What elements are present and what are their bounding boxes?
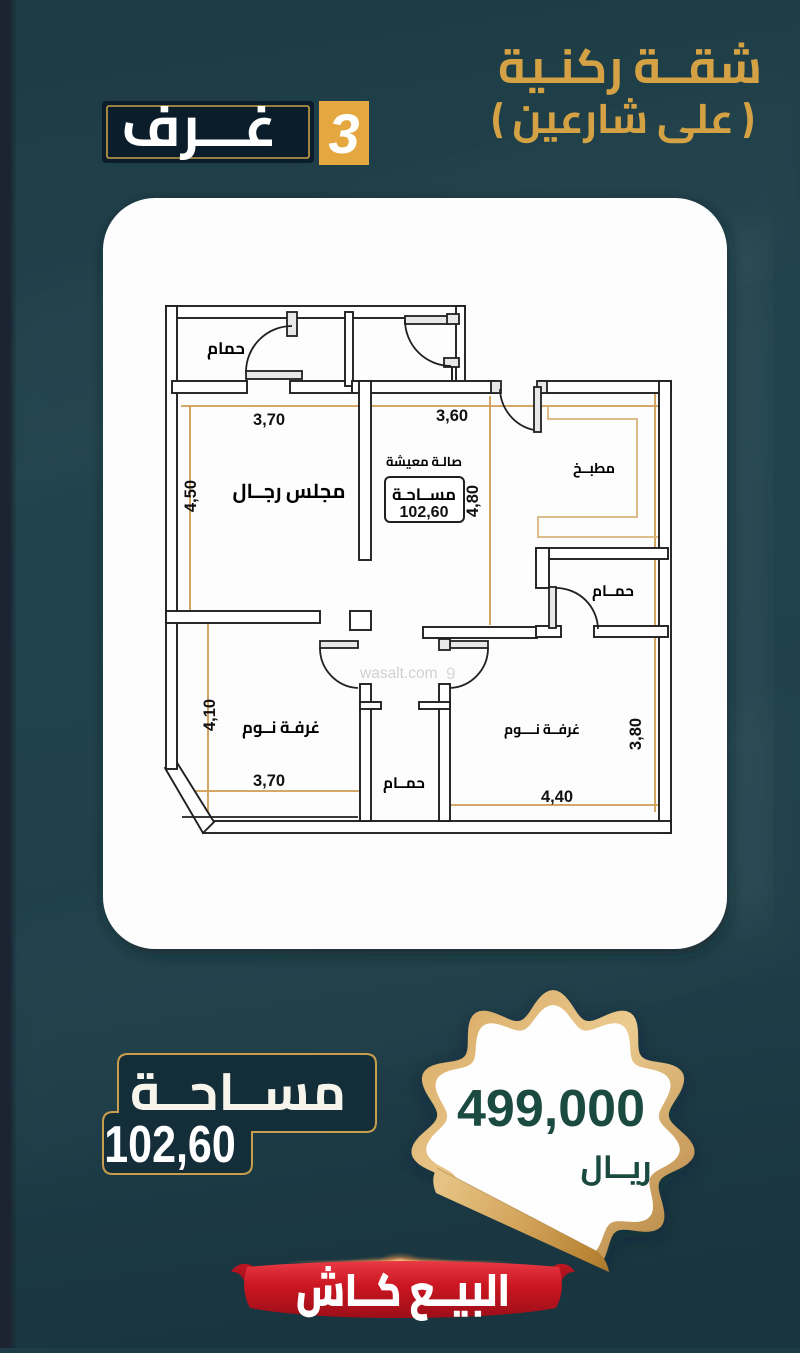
svg-text:wasalt.com: wasalt.com bbox=[359, 665, 438, 682]
svg-text:3: 3 bbox=[328, 102, 359, 165]
svg-text:499,000: 499,000 bbox=[457, 1080, 645, 1138]
svg-text:3,60: 3,60 bbox=[436, 407, 468, 425]
svg-text:4,80: 4,80 bbox=[464, 485, 482, 517]
svg-text:3,80: 3,80 bbox=[627, 718, 645, 750]
svg-text:4,40: 4,40 bbox=[541, 788, 573, 806]
svg-text:102,60: 102,60 bbox=[400, 504, 449, 521]
svg-text:102,60: 102,60 bbox=[104, 1116, 235, 1174]
svg-text:9: 9 bbox=[446, 664, 455, 683]
svg-text:3,70: 3,70 bbox=[253, 411, 285, 429]
svg-text:3,70: 3,70 bbox=[253, 772, 285, 790]
svg-text:4,50: 4,50 bbox=[182, 480, 200, 512]
svg-text:4,10: 4,10 bbox=[201, 699, 219, 731]
